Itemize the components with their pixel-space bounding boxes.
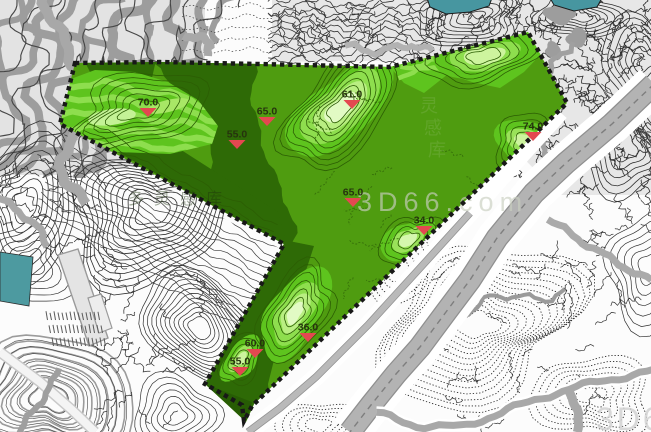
svg-text:34.0: 34.0 — [414, 215, 435, 227]
svg-text:36.0: 36.0 — [298, 322, 319, 334]
svg-text:74.0: 74.0 — [523, 121, 544, 133]
svg-text:3D6: 3D6 — [596, 401, 651, 432]
svg-text:70.0: 70.0 — [138, 97, 159, 109]
svg-text:60.0: 60.0 — [245, 338, 266, 350]
svg-text:感: 感 — [424, 118, 442, 138]
svg-text:库: 库 — [428, 140, 446, 160]
svg-text:55.0: 55.0 — [227, 129, 248, 141]
svg-text:61.0: 61.0 — [342, 89, 363, 101]
svg-text:灵: 灵 — [420, 96, 438, 116]
svg-text:65.0: 65.0 — [257, 106, 278, 118]
svg-text:3D66.com: 3D66.com — [357, 187, 528, 217]
svg-text:55.0: 55.0 — [230, 356, 251, 368]
svg-text:65.0: 65.0 — [343, 187, 364, 199]
